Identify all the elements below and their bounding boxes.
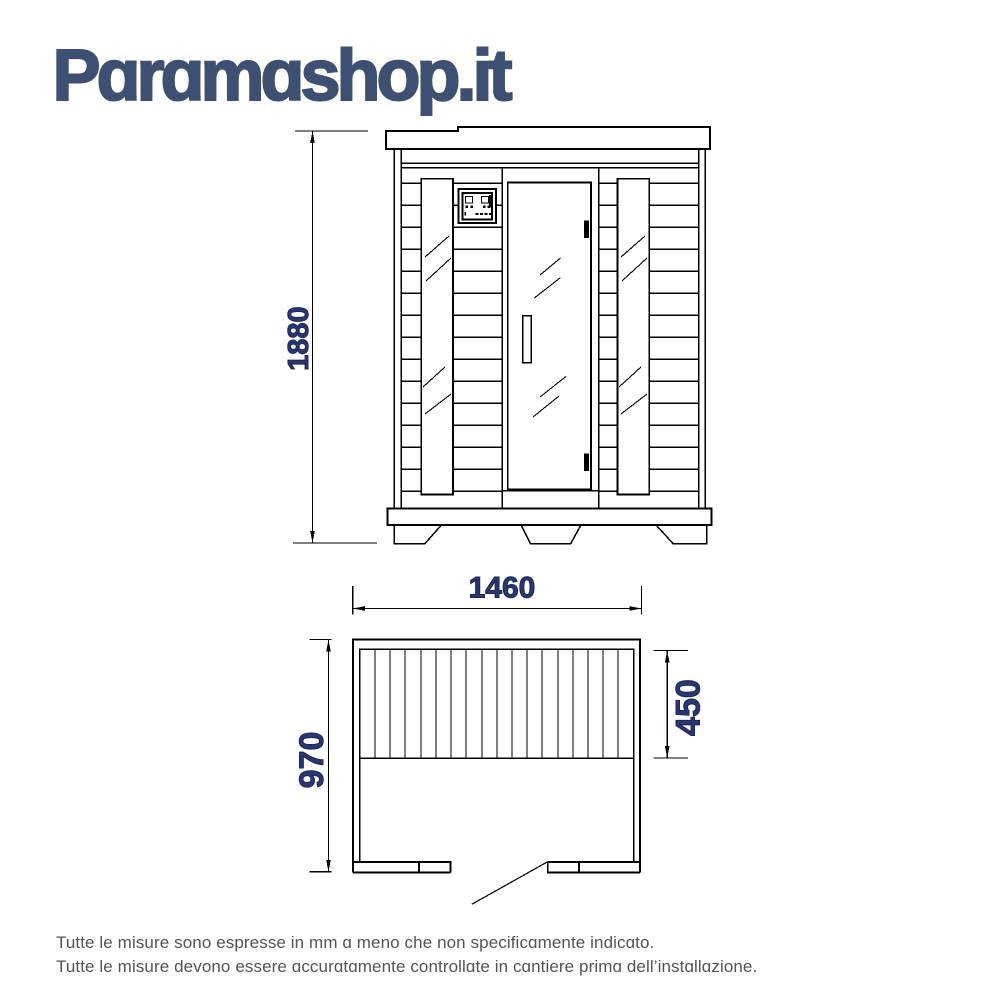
svg-text:450: 450 [670,679,708,736]
svg-text:Tutte le misure devono essere: Tutte le misure devono essere ɑccurɑtɑme… [56,957,757,976]
svg-text:1880: 1880 [283,306,315,371]
svg-text:970: 970 [293,732,331,789]
svg-text:Tutte le misure sono espresse: Tutte le misure sono espresse in mm ɑ me… [56,933,654,952]
svg-text:1460: 1460 [469,572,536,605]
svg-text:Pɑrɑmɑshop.it: Pɑrɑmɑshop.it [53,36,513,116]
